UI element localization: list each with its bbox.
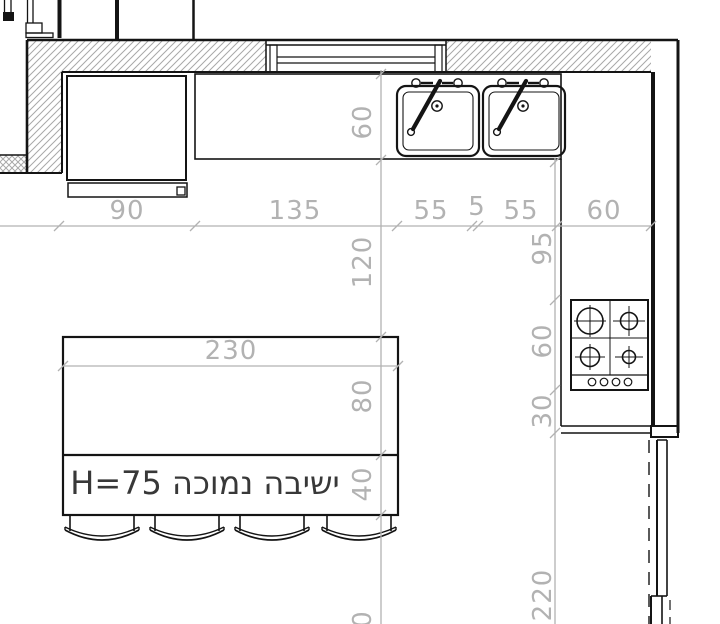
- countertop-end-cap: [561, 426, 651, 433]
- stool-1: [65, 516, 139, 540]
- sink-right: [483, 79, 565, 156]
- dim-label-60-cooktop: 60: [528, 323, 558, 358]
- thin-wall-right-line: [657, 440, 667, 596]
- island-seating-label: ישיבה נמוכה H=75: [85, 464, 325, 502]
- dim-label-30: 30: [528, 393, 558, 428]
- wall-top-right-segment: [446, 40, 651, 72]
- dim-label-90: 90: [109, 196, 144, 226]
- door-sill-upper: [26, 23, 42, 33]
- door-frame-detail: [3, 0, 194, 40]
- door-sill-lower: [26, 33, 53, 38]
- cooktop-knob-3: [612, 378, 620, 386]
- stools: [65, 516, 396, 540]
- burner-cross-tr: [613, 306, 645, 336]
- cooktop-knob-2: [600, 378, 608, 386]
- dim-label-55a: 55: [413, 196, 448, 226]
- dim-label-120: 120: [348, 236, 378, 289]
- dim-label-95: 95: [528, 230, 558, 265]
- cooktop: [571, 300, 648, 390]
- window-jamb-left: [270, 45, 277, 72]
- cooktop-knob-1: [588, 378, 596, 386]
- door-leaf-lines: [28, 0, 34, 23]
- dim-label-220: 220: [528, 569, 558, 622]
- sink-tap-dot: [435, 104, 438, 107]
- wall-column-left: [27, 40, 62, 173]
- walls: [0, 40, 678, 173]
- wall-column-right: [651, 40, 678, 437]
- dim-label-bottom-partial: 0: [348, 610, 378, 624]
- dim-label-55b: 55: [503, 196, 538, 226]
- wall-stub-existing: [0, 155, 27, 173]
- fridge-handle: [177, 187, 185, 195]
- dim-label-60-counter-depth: 60: [348, 104, 378, 139]
- fridge: [67, 76, 187, 197]
- stool-3: [235, 516, 309, 540]
- stool-4: [322, 516, 396, 540]
- window: [266, 45, 446, 72]
- burner-cross-tl: [574, 305, 606, 337]
- sink-tap-dot: [521, 104, 524, 107]
- dim-label-5: 5: [468, 192, 486, 222]
- door-frame-block: [3, 12, 14, 21]
- right-wall-cap: [651, 426, 678, 437]
- stool-2: [150, 516, 224, 540]
- dim-label-230: 230: [205, 336, 258, 366]
- sink-left: [397, 79, 479, 156]
- lower-right-wall: [649, 440, 670, 624]
- dim-label-40: 40: [348, 466, 378, 501]
- window-glass-lines: [277, 57, 435, 63]
- cooktop-knob-4: [624, 378, 632, 386]
- fridge-door-front: [68, 183, 187, 197]
- door-frame-lines: [5, 0, 12, 12]
- window-jamb-right: [435, 45, 442, 72]
- wall-top-left-segment: [62, 40, 266, 72]
- floor-plan-canvas: 90 135 55 5 55 60 60 120 80 40 0 95 60 3…: [0, 0, 720, 624]
- sink-basin-outer: [397, 86, 479, 156]
- dim-label-135: 135: [269, 196, 322, 226]
- fridge-body: [67, 76, 186, 180]
- sink-basin-outer: [483, 86, 565, 156]
- burner-cross-br: [615, 346, 643, 368]
- countertop: [195, 74, 651, 433]
- dim-label-60-right: 60: [586, 196, 621, 226]
- floor-plan-drawing: 90 135 55 5 55 60 60 120 80 40 0 95 60 3…: [0, 0, 720, 624]
- dim-label-80: 80: [348, 378, 378, 413]
